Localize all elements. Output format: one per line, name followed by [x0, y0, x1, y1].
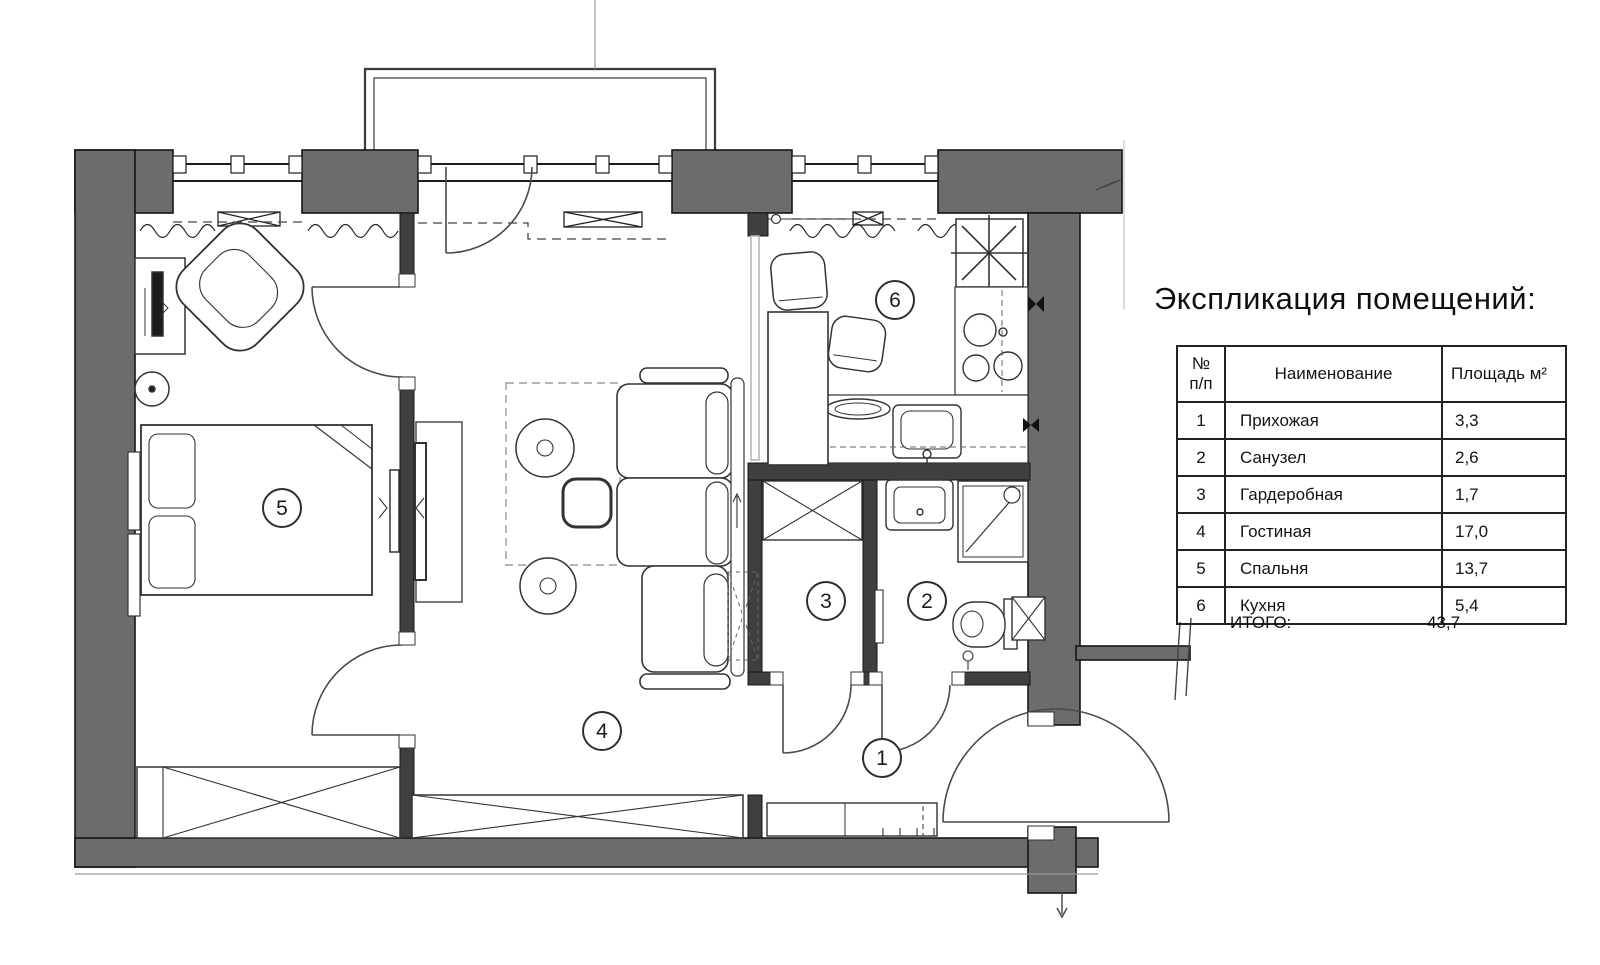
room-label-2: 2	[908, 582, 946, 620]
total-value: 43,7	[1427, 613, 1460, 633]
tv-living-icon	[415, 443, 426, 580]
table-row: 1 Прихожая 3,3	[1177, 402, 1566, 439]
sofa	[617, 368, 744, 689]
balcony-outline	[365, 0, 715, 150]
wall-radiator	[128, 452, 140, 530]
pipe-riser-icon	[772, 215, 781, 224]
room-label-1: 1	[863, 739, 901, 777]
svg-text:4: 4	[596, 720, 608, 743]
svg-text:5: 5	[276, 497, 288, 520]
water-heater-x	[1012, 597, 1045, 640]
table-row: 5 Спальня 13,7	[1177, 550, 1566, 587]
pillow	[149, 434, 195, 508]
explication-table: №п/п Наименование Площадь м² 1 Прихожая …	[1176, 345, 1567, 625]
svg-text:2: 2	[921, 590, 933, 613]
room-label-5: 5	[263, 489, 301, 527]
wall-radiator	[128, 534, 140, 616]
mirror-panel	[875, 590, 883, 643]
room-label-3: 3	[807, 582, 845, 620]
svg-text:1: 1	[876, 747, 888, 770]
dining-zone-dashed	[506, 383, 620, 565]
living-wardrobe-x	[412, 795, 743, 838]
bedroom-wardrobe-x	[137, 767, 400, 838]
hallway-furniture	[767, 803, 937, 836]
table-total-row: ИТОГО: 43,7	[1176, 611, 1533, 635]
header-num: №п/п	[1177, 346, 1225, 402]
room-label-6: 6	[876, 281, 914, 319]
kitchen-table	[768, 312, 828, 465]
bedroom-furniture	[128, 213, 400, 838]
bathroom-fixtures	[763, 480, 1045, 670]
table-header-row: №п/п Наименование Площадь м²	[1177, 346, 1566, 402]
wardrobe3-x	[763, 481, 862, 540]
window-sill-dashed	[173, 219, 938, 239]
svg-text:6: 6	[889, 289, 901, 312]
kitchen-furniture	[768, 215, 1044, 465]
toilet	[953, 599, 1017, 649]
bath-sink	[886, 480, 953, 530]
hygiene-shower-icon	[963, 651, 973, 670]
header-area: Площадь м²	[1442, 346, 1566, 402]
tv-bedroom-icon	[390, 470, 399, 552]
entrance-door-swing	[943, 709, 1169, 822]
shoe-cabinet	[767, 803, 937, 836]
windows	[173, 156, 938, 181]
monitor-icon	[152, 272, 163, 336]
explication-title: Экспликация помещений:	[1154, 281, 1536, 317]
table-row: 2 Санузел 2,6	[1177, 439, 1566, 476]
living-furniture	[412, 368, 758, 838]
kitchen-open-partition-line	[751, 236, 759, 460]
table-row: 4 Гостиная 17,0	[1177, 513, 1566, 550]
kitchen-sink	[893, 405, 961, 464]
kitchen-chair	[827, 314, 888, 373]
floorplan-sheet: 1 2 3 4 5 6 Экспликация помещений: №п/п …	[0, 0, 1600, 965]
total-label: ИТОГО:	[1230, 613, 1291, 633]
header-name: Наименование	[1225, 346, 1442, 402]
svg-text:3: 3	[820, 590, 832, 613]
coffee-table	[563, 479, 611, 527]
room-label-4: 4	[583, 712, 621, 750]
shower-cabin	[958, 481, 1028, 562]
pillow	[149, 516, 195, 588]
kitchen-chair	[770, 251, 829, 311]
vent-hood-fan-icon	[951, 215, 1027, 291]
table-row: 3 Гардеробная 1,7	[1177, 476, 1566, 513]
chevron-left-icon	[379, 498, 387, 518]
